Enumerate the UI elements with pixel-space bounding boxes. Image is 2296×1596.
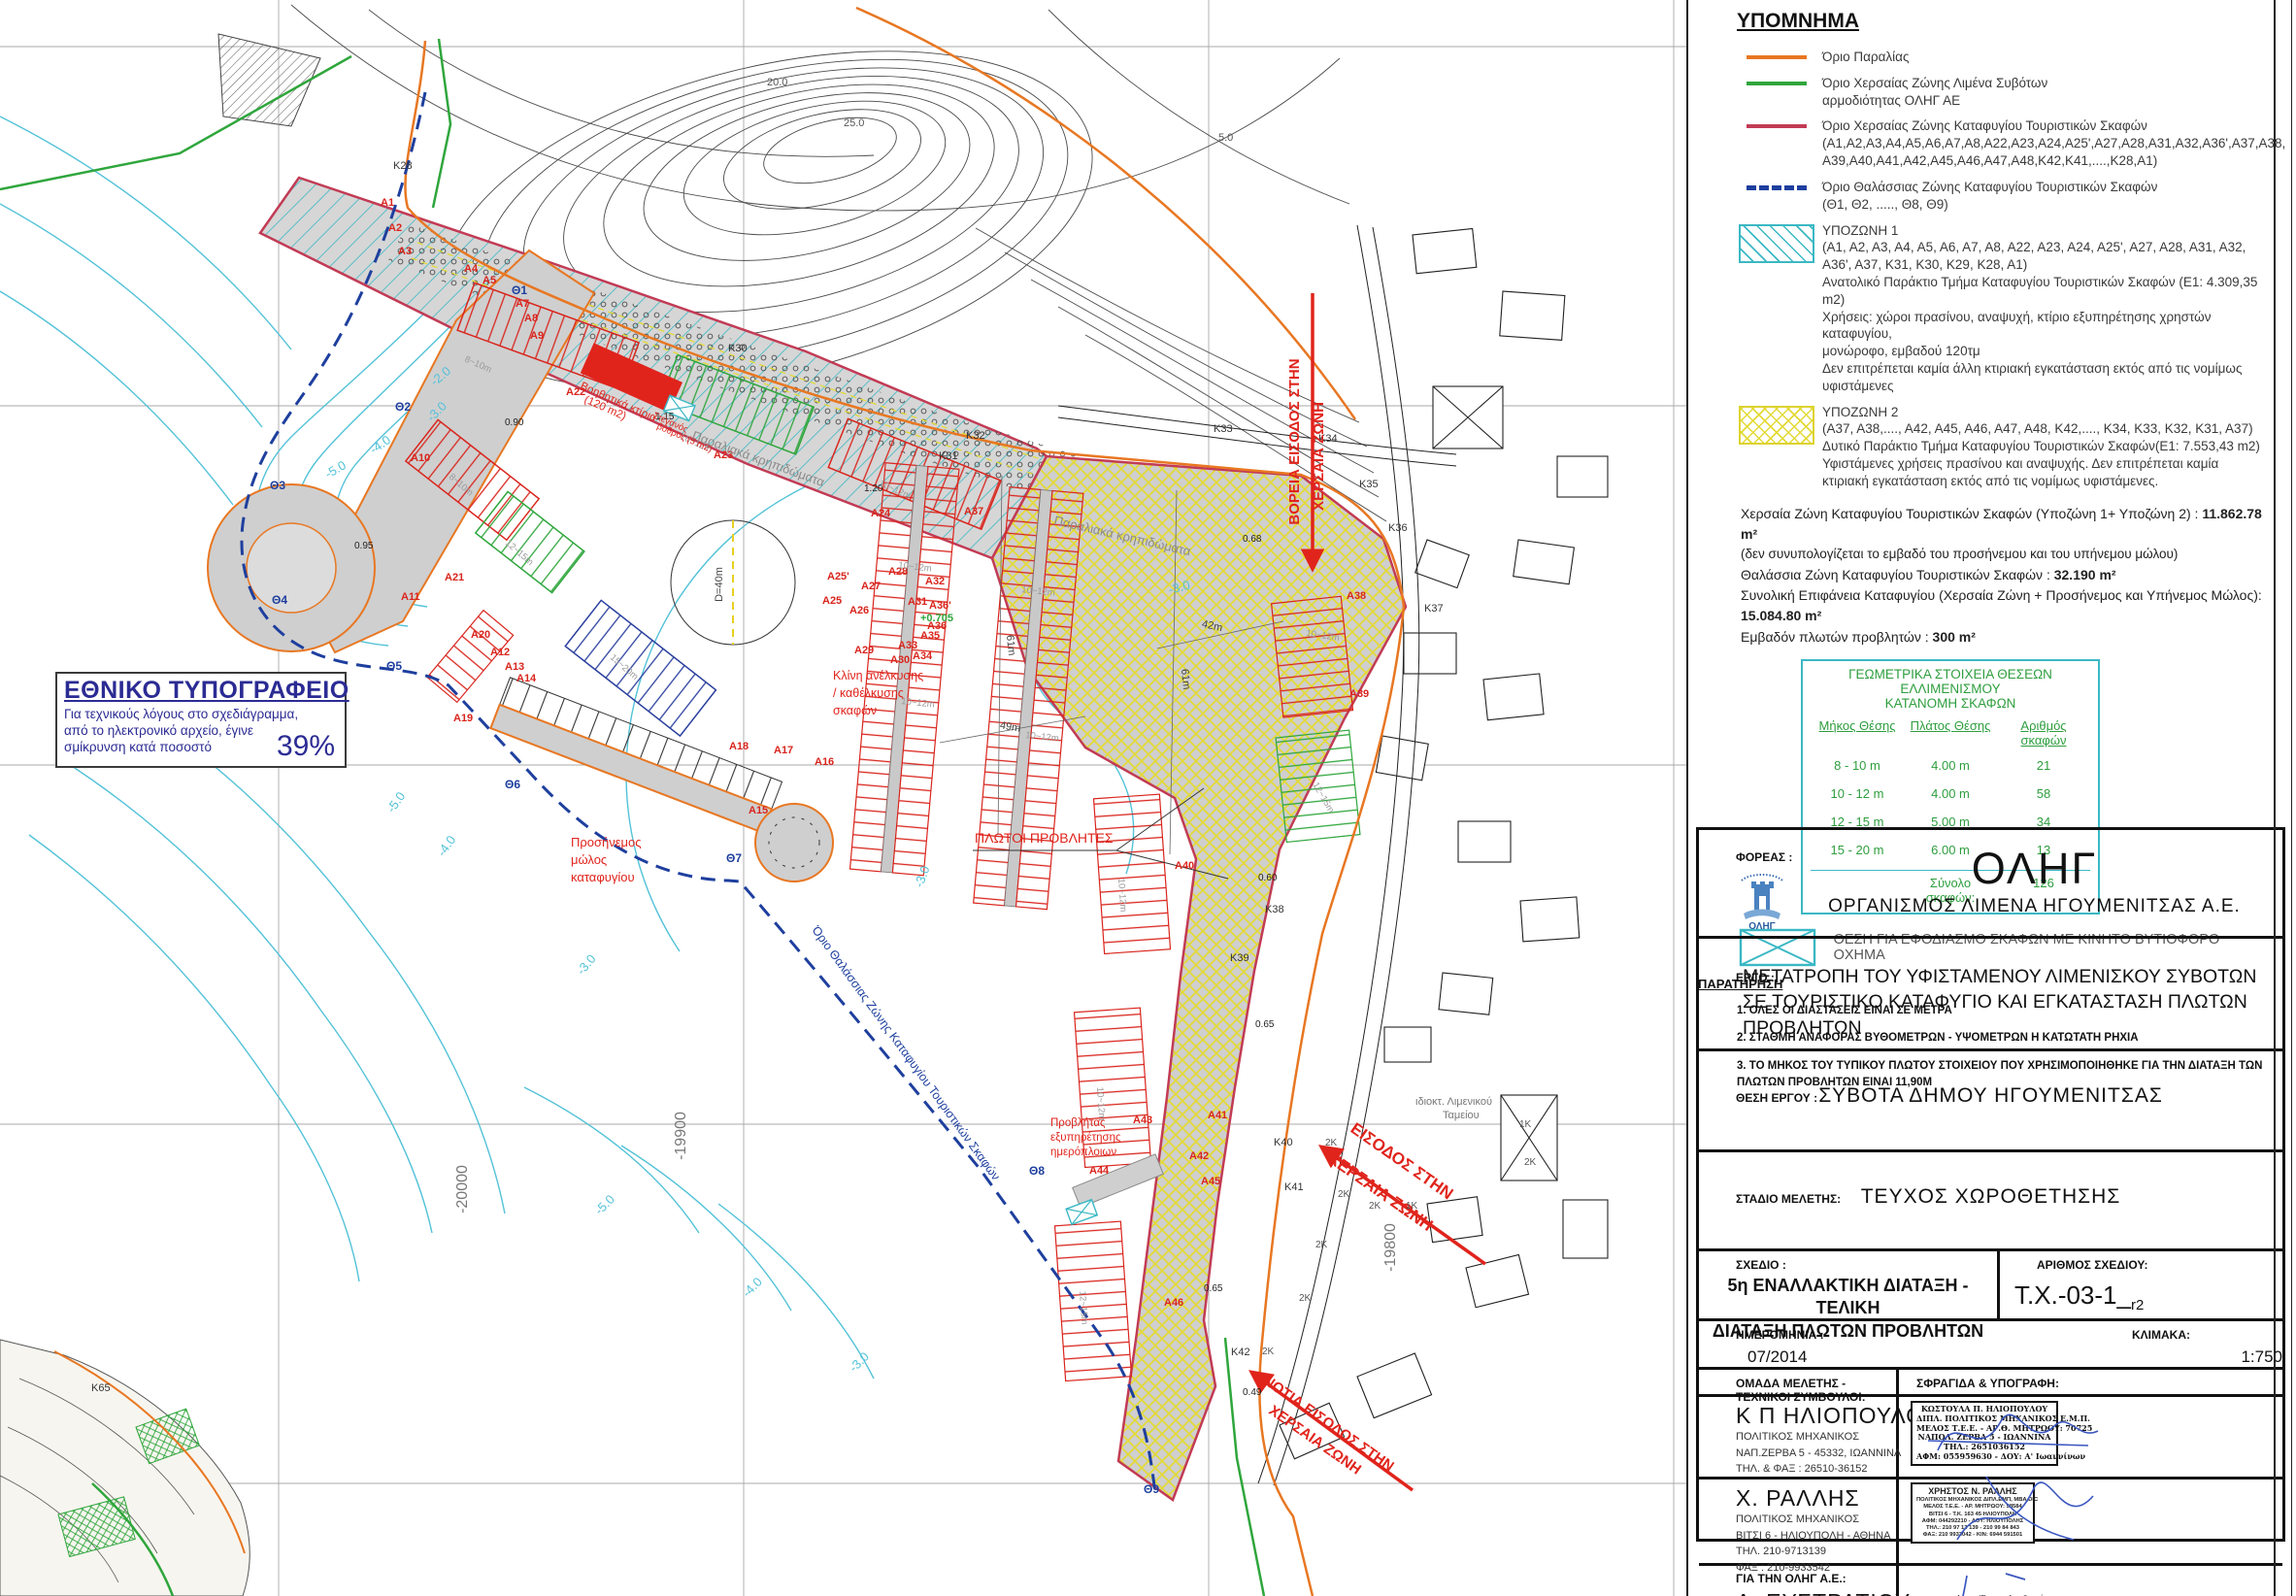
total-area: Συνολική Επιφάνεια Καταφυγίου (Χερσαία Ζ… (1741, 585, 2273, 627)
sea-boundary-point-label: Θ8 (1029, 1164, 1045, 1178)
boundary-point-label: A45 (1201, 1176, 1220, 1187)
boundary-point-label: K30 (728, 343, 748, 354)
organization-full-name: ΟΡΓΑΝΙΣΜΟΣ ΛΙΜΕΝΑ ΗΓΟΥΜΕΝΙΤΣΑΣ Α.Ε. (1786, 896, 2282, 917)
olig-logo: ΟΛΗΓ (1736, 869, 1788, 933)
sea-boundary-point-label: Θ3 (270, 479, 285, 492)
map-annotation: 2Κ (1325, 1138, 1338, 1148)
date-value: 07/2014 (1747, 1347, 1940, 1367)
titleblock-date-row: ΗΜΕΡΟΜΗΝΙΑ : 07/2014 ΚΛΙΜΑΚΑ: 1:750 (1699, 1321, 2282, 1370)
spot-elevation-label: 0.49 (1243, 1387, 1262, 1398)
engineer-name: Α. ΕΥΣΤΡΑΤΙΟΥ (1736, 1589, 1896, 1596)
spot-elevation-label: 0.65 (1255, 1019, 1275, 1030)
boundary-point-label: K41 (1284, 1181, 1304, 1193)
map-annotation: Ταμείου (1443, 1110, 1480, 1121)
map-annotation: 1Κ (1519, 1119, 1532, 1130)
engineer-row-efstratiou: ΓΙΑ ΤΗΝ ΟΛΗΓ Α.Ε.: Α. ΕΥΣΤΡΑΤΙΟΥ ΠΟΛΙΤΙΚ… (1699, 1566, 2282, 1596)
spot-elevation-label: 0.65 (1204, 1283, 1223, 1294)
sea-boundary-point-label: Θ2 (395, 400, 411, 414)
boundary-point-label: A44 (1089, 1165, 1110, 1177)
boundary-point-label: A8 (524, 313, 538, 324)
for-olig-label: ΓΙΑ ΤΗΝ ΟΛΗΓ Α.Ε.: (1736, 1572, 1896, 1585)
sea-boundary-point-label: Θ9 (1144, 1482, 1159, 1496)
table-row: 8 - 10 m4.00 m21 (1811, 751, 2090, 780)
depth-label: -3.0 (574, 951, 599, 978)
scale-cell: ΚΛΙΜΑΚΑ: 1:750 (1940, 1321, 2282, 1367)
map-annotation: Όριο Θαλάσσιας Ζώνης Καταφυγίου Τουριστι… (809, 923, 1003, 1183)
boundary-point-label: A26 (849, 605, 869, 616)
map-labels-layer: A1A2A3A4A5A7A8A9A10A11A12A13A14A15A16A17… (91, 77, 1537, 1496)
signature (1909, 1566, 2122, 1596)
map-annotation: 2Κ (1262, 1347, 1275, 1357)
spot-elevation-label: 0.68 (1243, 534, 1262, 545)
boundary-point-label: A46 (1164, 1297, 1183, 1309)
map-annotation: 2Κ (1338, 1189, 1350, 1200)
boundary-point-label: K36 (1388, 522, 1408, 534)
marsh-hatch (218, 34, 320, 126)
boundary-point-label: A13 (505, 661, 524, 673)
map-annotation: σκαφών (833, 704, 877, 717)
drawing-title-line1: 5η ΕΝΑΛΛΑΚΤΙΚΗ ΔΙΑΤΑΞΗ - ΤΕΛΙΚΗ (1699, 1275, 1997, 1320)
contour-elevation-label: 20.0 (767, 77, 787, 88)
drawing-sheet: A1A2A3A4A5A7A8A9A10A11A12A13A14A15A16A17… (0, 0, 2296, 1596)
boundary-point-label: A16 (815, 756, 834, 768)
boundary-point-label: K37 (1424, 603, 1444, 615)
berth-comb (1272, 596, 1353, 717)
contour-elevation-label: 25.0 (844, 117, 864, 129)
titleblock-project-row: ΕΡΓΟ : ΜΕΤΑΤΡΟΠΗ ΤΟΥ ΥΦΙΣΤΑΜΕΝΟΥ ΛΙΜΕΝΙΣ… (1699, 964, 2282, 1051)
titleblock-location-row: ΘΕΣΗ ΕΡΓΟΥ : ΣΥΒΟΤΑ ΔΗΜΟΥ ΗΓΟΥΜΕΝΙΤΣΑΣ (1699, 1084, 2282, 1152)
boundary-point-label: A19 (453, 713, 473, 724)
drawing-number-label: ΑΡΙΘΜΟΣ ΣΧΕΔΙΟΥ: (2037, 1258, 2147, 1272)
boundary-point-label: A12 (490, 647, 510, 658)
contour-elevation-label: 5.0 (1218, 132, 1233, 144)
dimension-label: 61m (1179, 668, 1192, 690)
legend-item-sea-zone: Όριο Θαλάσσιας Ζώνης Καταφυγίου Τουριστι… (1737, 179, 2273, 214)
boundary-point-label: A20 (471, 629, 490, 641)
drawing-number: Τ.Χ.-03-1_ (2014, 1280, 2131, 1310)
boundary-point-label: A38 (1347, 590, 1366, 602)
legend-item-shoreline: Όριο Παραλίας (1737, 49, 2273, 66)
boundary-point-label: A39 (1349, 688, 1369, 700)
boundary-point-label: A1 (381, 197, 394, 209)
berth-table-title: ΓΕΩΜΕΤΡΙΚΑ ΣΤΟΙΧΕΙΑ ΘΕΣΕΩΝ ΕΛΛΙΜΕΝΙΣΜΟΥ (1811, 667, 2090, 696)
date-cell: ΗΜΕΡΟΜΗΝΙΑ : 07/2014 (1699, 1321, 1940, 1367)
map-annotation: ΧΕΡΣΑΙΑ ΖΩΝΗ (1311, 402, 1327, 511)
boundary-point-label: A40 (1175, 860, 1194, 872)
harbor-plan-map: A1A2A3A4A5A7A8A9A10A11A12A13A14A15A16A17… (0, 0, 1686, 1596)
floating-pier-area: Εμβαδόν πλωτών προβλητών : 300 m² (1741, 627, 2273, 648)
breakwater-head-inner (247, 523, 336, 613)
boundary-point-label: A31 (908, 596, 927, 608)
boundary-point-label: K42 (1231, 1347, 1250, 1358)
authority-label: ΦΟΡΕΑΣ : (1736, 850, 1792, 864)
depth-label: -5.0 (383, 789, 408, 815)
stamp-signature-label: ΣΦΡΑΓΙΔΑ & ΥΠΟΓΡΑΦΗ: (1916, 1377, 2282, 1390)
green-line-swatch (1747, 82, 1807, 85)
orange-line-swatch (1747, 55, 1807, 59)
drawing-label: ΣΧΕΔΙΟ : (1736, 1258, 1786, 1272)
boundary-point-label: A18 (729, 741, 749, 752)
sea-boundary-point-label: Θ7 (726, 851, 742, 865)
engineer-row-iliopoulou: Κ Π ΗΛΙΟΠΟΥΛΟΥ ΠΟΛΙΤΙΚΟΣ ΜΗΧΑΝΙΚΟΣ ΝΑΠ.Ζ… (1699, 1397, 2282, 1480)
legend-item-subzone1: ΥΠΟΖΩΝΗ 1 (Α1, Α2, Α3, Α4, Α5, Α6, Α7, Α… (1737, 222, 2273, 395)
map-annotation: Προβλήτας (1050, 1117, 1106, 1129)
table-row: 10 - 12 m4.00 m58 (1811, 780, 2090, 808)
depth-label: -5.0 (322, 457, 349, 481)
boundary-point-label: A25' (827, 571, 849, 582)
boundary-point-label: A7 (516, 298, 529, 310)
boundary-point-label: K65 (91, 1382, 111, 1394)
drawing-title-cell: ΣΧΕΔΙΟ : 5η ΕΝΑΛΛΑΚΤΙΚΗ ΔΙΑΤΑΞΗ - ΤΕΛΙΚΗ… (1699, 1251, 2000, 1318)
boundary-point-label: A36' (929, 600, 951, 612)
boundary-point-label: A34 (913, 650, 933, 662)
map-annotation: / καθέλκυσης (833, 686, 904, 700)
date-label: ΗΜΕΡΟΜΗΝΙΑ : (1736, 1328, 1824, 1342)
dimension-label: 61m (1004, 634, 1017, 656)
legend-item-subzone2: ΥΠΟΖΩΝΗ 2 (Α37, Α38,...., Α42, Α45, Α46,… (1737, 404, 2273, 490)
spot-elevation-label: 0.95 (354, 541, 374, 551)
engineer-stamp: ΧΡΗΣΤΟΣ Ν. ΡΑΛΛΗΣ ΠΟΛΙΤΙΚΟΣ ΜΗΧΑΝΙΚΟΣ ΔΙ… (1911, 1482, 2035, 1544)
shoreline-boundary-orange-hill (856, 8, 1355, 419)
boundary-point-label: A32 (925, 576, 945, 587)
boundary-point-label: A21 (445, 572, 464, 583)
boundary-point-label: K28 (393, 160, 413, 172)
boundary-point-label: K38 (1265, 904, 1284, 915)
sheet-border-outer (2291, 0, 2292, 1596)
boundary-point-label: A14 (516, 673, 537, 684)
berth-table-header: Μήκος Θέσης Πλάτος Θέσης Αριθμός σκαφών (1811, 718, 2090, 748)
boundary-point-label: A11 (401, 591, 420, 603)
scale-label: ΚΛΙΜΑΚΑ: (2132, 1328, 2190, 1342)
titleblock-drawing-row: ΣΧΕΔΙΟ : 5η ΕΝΑΛΛΑΚΤΙΚΗ ΔΙΑΤΑΞΗ - ΤΕΛΙΚΗ… (1699, 1251, 2282, 1321)
reduction-percent: 39% (277, 730, 335, 763)
legend-item-refuge-land-zone: Όριο Χερσαίας Ζώνης Καταφυγίου Τουριστικ… (1737, 117, 2273, 169)
svg-text:ΟΛΗΓ: ΟΛΗΓ (1748, 921, 1775, 932)
map-annotation: 1Κ (1406, 1201, 1418, 1212)
spot-elevation-label: +0.705 (920, 613, 953, 624)
grid-coordinate-label: -20000 (454, 1165, 471, 1214)
printing-note-title: ΕΘΝΙΚΟ ΤΥΠΟΓΡΑΦΕΙΟ (64, 677, 338, 705)
legend-title: ΥΠΟΜΝΗΜΑ (1737, 10, 2273, 33)
boundary-point-label: A2 (388, 222, 402, 234)
cyan-hatch-swatch (1739, 224, 1814, 263)
boundary-point-label: K31 (939, 450, 958, 462)
drawing-number-revision: r2 (2131, 1297, 2144, 1313)
boundary-point-label: A30 (890, 654, 910, 666)
boundary-point-label: A15 (749, 805, 768, 816)
stage-label: ΣΤΑΔΙΟ ΜΕΛΕΤΗΣ: (1736, 1192, 1841, 1206)
sea-boundary-point-label: Θ1 (512, 283, 527, 297)
map-annotation: 2Κ (1315, 1240, 1328, 1250)
sea-zone-area: Θαλάσσια Ζώνη Καταφυγίου Τουριστικών Σκα… (1741, 565, 2273, 585)
hill-contour-ring (714, 91, 931, 227)
engineer-row-rallis: Χ. ΡΑΛΛΗΣ ΠΟΛΙΤΙΚΟΣ ΜΗΧΑΝΙΚΟΣ ΒΙΤΣΙ 6 - … (1699, 1480, 2282, 1566)
boundary-point-label: A37 (964, 506, 983, 517)
map-annotation: καταφυγίου (571, 870, 635, 884)
dimension-label: D=40m (714, 567, 725, 602)
depth-label: -3.0 (847, 1349, 872, 1375)
sheet-border-inner (2274, 0, 2276, 1596)
berth-comb (1055, 1221, 1132, 1380)
land-zone-area: Χερσαία Ζώνη Καταφυγίου Τουριστικών Σκαφ… (1741, 504, 2273, 546)
boundary-point-label: A9 (530, 330, 544, 342)
project-label: ΕΡΓΟ : (1736, 971, 1775, 984)
title-block: ΦΟΡΕΑΣ : ΟΛΗΓ ΟΛΗΓ ΟΡΓΑΝΙΣΜΟΣ ΛΙΜΕΝΑ ΗΓΟ… (1696, 827, 2285, 1542)
engineer-stamp: ΚΩΣΤΟΥΛΑ Π. ΗΛΙΟΠΟΥΛΟΥΔΙΠΛ. ΠΟΛΙΤΙΚΟΣ ΜΗ… (1911, 1401, 2058, 1466)
boundary-point-label: A25 (822, 595, 842, 607)
boundary-point-label: A42 (1189, 1150, 1209, 1162)
land-zone-area-note: (δεν συνυπολογίζεται το εμβαδό του προσή… (1741, 545, 2273, 565)
boundary-point-label: A5 (482, 275, 496, 286)
grid-coordinate-label: -19800 (1382, 1223, 1399, 1272)
spot-elevation-label: 0.60 (1258, 873, 1278, 883)
titleblock-authority-row: ΦΟΡΕΑΣ : ΟΛΗΓ ΟΛΗΓ ΟΡΓΑΝΙΣΜΟΣ ΛΙΜΕΝΑ ΗΓΟ… (1699, 844, 2282, 939)
boundary-point-label: A24 (871, 508, 891, 519)
map-annotation: Κλίνη ανέλκυσης (833, 669, 923, 682)
map-annotation: ΠΛΩΤΟΙ ΠΡΟΒΛΗΤΕΣ (975, 830, 1114, 846)
map-annotation: ημερόπλοιων (1050, 1147, 1116, 1158)
berth-table-subtitle: ΚΑΤΑΝΟΜΗ ΣΚΑΦΩΝ (1811, 696, 2090, 711)
boundary-point-label: K39 (1230, 952, 1249, 964)
map-annotation: Προσήνεμος (571, 835, 642, 849)
spot-elevation-label: 0.90 (505, 417, 524, 428)
hill-contour-ring (757, 106, 903, 195)
area-summary: Χερσαία Ζώνη Καταφυγίου Τουριστικών Σκαφ… (1741, 504, 2273, 648)
crimson-line-swatch (1747, 124, 1807, 128)
boundary-point-label: A29 (854, 645, 874, 656)
map-annotation: 2Κ (1369, 1201, 1381, 1212)
map-annotation: 2Κ (1524, 1157, 1537, 1168)
boundary-point-label: K35 (1359, 479, 1379, 490)
sea-boundary-point-label: Θ4 (272, 593, 287, 607)
map-annotation: μώλος (571, 852, 607, 867)
dashed-line-swatch (1747, 185, 1807, 190)
map-annotation: ιδιοκτ. Λιμενικού (1415, 1096, 1492, 1108)
titleblock-stage-row: ΣΤΑΔΙΟ ΜΕΛΕΤΗΣ: ΤΕΥΧΟΣ ΧΩΡΟΘΕΤΗΣΗΣ (1699, 1185, 2282, 1251)
boundary-point-label: A17 (774, 745, 793, 756)
town-blocks (1280, 229, 1608, 1459)
sea-boundary-point-label: Θ5 (386, 659, 402, 673)
depth-label: -4.0 (434, 833, 458, 859)
boundary-point-label: A43 (1133, 1114, 1152, 1126)
boundary-point-label: A27 (861, 581, 881, 592)
engineer-name: Κ Π ΗΛΙΟΠΟΥΛΟΥ (1736, 1403, 1896, 1429)
boundary-point-label: A10 (411, 452, 430, 464)
drawing-number-cell: ΑΡΙΘΜΟΣ ΣΧΕΔΙΟΥ: Τ.Χ.-03-1_r2 (2000, 1251, 2282, 1318)
titleblock-team-header: ΟΜΑΔΑ ΜΕΛΕΤΗΣ - ΤΕΧΝΙΚΟΙ ΣΥΜΒΟΥΛΟΙ: ΣΦΡΑ… (1699, 1370, 2282, 1397)
location-label: ΘΕΣΗ ΕΡΓΟΥ : (1736, 1091, 1817, 1105)
organization-short-name: ΟΛΗΓ (1786, 844, 2282, 894)
boundary-point-label: A41 (1208, 1110, 1227, 1121)
legend-item-port-land-zone: Όριο Χερσαίας Ζώνης Λιμένα Συβότων αρμοδ… (1737, 75, 2273, 110)
right-panel: ΥΠΟΜΝΗΜΑ Όριο Παραλίας Όριο Χερσαίας Ζών… (1686, 0, 2296, 1596)
yellow-hatch-swatch (1739, 406, 1814, 445)
map-annotation: ΒΟΡΕΙΑ ΕΙΣΟΔΟΣ ΣΤΗΝ (1286, 358, 1303, 524)
depth-label: -4.0 (740, 1275, 765, 1300)
grid-coordinate-label: -19900 (673, 1112, 689, 1160)
hill-contour-ring (670, 77, 959, 258)
map-annotation: εξυπηρέτησης (1050, 1132, 1121, 1144)
boundary-point-label: K33 (1214, 423, 1233, 435)
boundary-point-label: A4 (464, 263, 479, 275)
engineer-name: Χ. ΡΑΛΛΗΣ (1736, 1485, 1896, 1512)
boundary-point-label: K32 (966, 430, 985, 442)
map-annotation: 2Κ (1299, 1293, 1312, 1304)
boundary-point-label: K40 (1274, 1137, 1293, 1148)
depth-label: -5.0 (592, 1192, 617, 1217)
scale-value: 1:750 (2241, 1347, 2282, 1367)
national-printing-office-note: ΕΘΝΙΚΟ ΤΥΠΟΓΡΑΦΕΙΟ Για τεχνικούς λόγους … (55, 672, 347, 768)
project-title: ΜΕΤΑΤΡΟΠΗ ΤΟΥ ΥΦΙΣΤΑΜΕΝΟΥ ΛΙΜΕΝΙΣΚΟΥ ΣΥΒ… (1743, 964, 2282, 1041)
sea-boundary-point-label: Θ6 (505, 778, 520, 791)
boundary-point-label: A3 (398, 246, 412, 257)
south-shore-land (0, 1340, 250, 1596)
fuel-station-mark (1066, 1200, 1097, 1225)
berth-comb (1094, 794, 1171, 953)
